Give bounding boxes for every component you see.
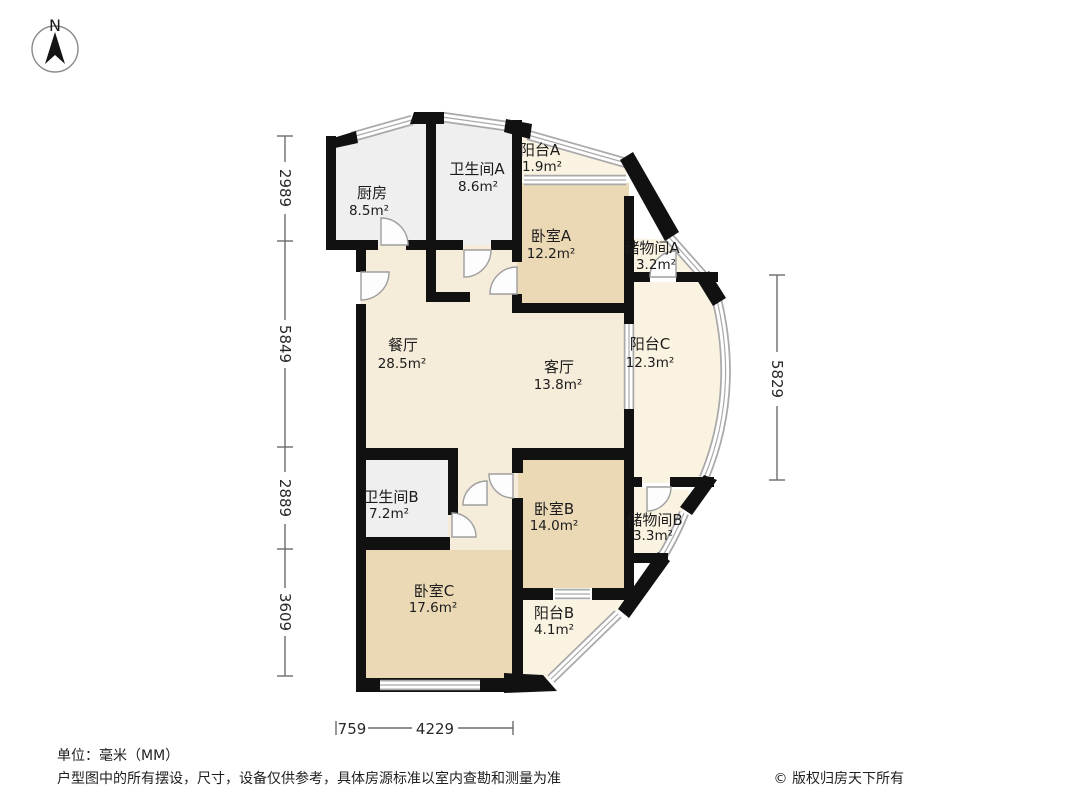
svg-text:14.0m²: 14.0m² bbox=[530, 518, 579, 534]
dim-label-bottom-2: 4229 bbox=[416, 720, 454, 738]
wall-bathroom-b-bottom bbox=[356, 537, 450, 550]
disclaimer-text: 户型图中的所有摆设，尺寸，设备仅供参考，具体房源标准以室内查勘和测量为准 bbox=[57, 768, 561, 788]
wall-balcony-c-left-upper bbox=[624, 272, 634, 324]
dim-label-left-2: 5849 bbox=[276, 325, 294, 363]
svg-text:阳台B: 阳台B bbox=[534, 604, 574, 622]
room-label-bedroom-c: 卧室C 17.6m² bbox=[409, 582, 458, 616]
svg-text:3.3m²: 3.3m² bbox=[633, 528, 673, 544]
svg-text:阳台C: 阳台C bbox=[630, 335, 670, 353]
room-label-balcony-b: 阳台B 4.1m² bbox=[534, 604, 574, 638]
dimension-bottom: 759 4229 bbox=[336, 720, 513, 738]
svg-text:13.8m²: 13.8m² bbox=[534, 377, 583, 393]
dim-label-left-4: 3609 bbox=[276, 593, 294, 631]
wall-storage-a-bottom-2 bbox=[676, 272, 718, 282]
unit-note: 单位：毫米（MM） bbox=[57, 745, 179, 765]
dimension-left: 2989 5849 2889 3609 bbox=[276, 136, 294, 676]
floorplan-svg: 厨房 8.5m² 卫生间A 8.6m² 阳台A 1.9m² 卧室A 12.2m²… bbox=[0, 0, 1066, 800]
wall-storage-b-bottom bbox=[624, 553, 668, 563]
dim-label-left-3: 2889 bbox=[276, 479, 294, 517]
wall-bedroom-b-bottom-2 bbox=[592, 588, 634, 600]
svg-text:1.9m²: 1.9m² bbox=[522, 159, 562, 175]
svg-text:卧室C: 卧室C bbox=[414, 582, 454, 600]
svg-text:卫生间A: 卫生间A bbox=[449, 160, 505, 178]
wall-storage-b-top-2 bbox=[670, 477, 714, 487]
wall-bedroom-b-bottom-1 bbox=[512, 588, 553, 600]
floorplan-page: 厨房 8.5m² 卫生间A 8.6m² 阳台A 1.9m² 卧室A 12.2m²… bbox=[0, 0, 1066, 800]
svg-text:7.2m²: 7.2m² bbox=[369, 506, 409, 522]
wall-dining-stub bbox=[426, 292, 470, 302]
wall-bedroom-b-left-2 bbox=[512, 498, 523, 590]
svg-text:12.3m²: 12.3m² bbox=[626, 355, 675, 371]
svg-text:17.6m²: 17.6m² bbox=[409, 600, 458, 616]
svg-text:储物间A: 储物间A bbox=[624, 239, 680, 257]
svg-text:8.6m²: 8.6m² bbox=[458, 179, 498, 195]
dim-label-right-1: 5829 bbox=[768, 360, 786, 398]
svg-text:卧室B: 卧室B bbox=[534, 500, 574, 518]
copyright-text: © 版权归房天下所有 bbox=[774, 768, 904, 788]
svg-text:厨房: 厨房 bbox=[357, 184, 387, 202]
wall-bathroom-b-top bbox=[356, 448, 458, 460]
svg-text:阳台A: 阳台A bbox=[520, 141, 561, 159]
room-label-bedroom-b: 卧室B 14.0m² bbox=[530, 500, 579, 534]
svg-text:12.2m²: 12.2m² bbox=[527, 246, 576, 262]
room-label-bedroom-a: 卧室A 12.2m² bbox=[527, 227, 576, 262]
dimension-right: 5829 bbox=[768, 275, 786, 480]
svg-text:卫生间B: 卫生间B bbox=[363, 488, 418, 506]
dim-label-bottom-1: 759 bbox=[338, 720, 367, 738]
dim-label-left-1: 2989 bbox=[276, 169, 294, 207]
wall-bathroom-b-right bbox=[448, 448, 458, 515]
svg-text:卧室A: 卧室A bbox=[531, 227, 572, 245]
wall-bedroom-b-top bbox=[512, 448, 634, 460]
wall-bathrooma-bottom-1 bbox=[432, 240, 463, 250]
svg-text:8.5m²: 8.5m² bbox=[349, 203, 389, 219]
svg-text:4.1m²: 4.1m² bbox=[534, 622, 574, 638]
svg-text:3.2m²: 3.2m² bbox=[636, 257, 676, 273]
wall-kitchen-left bbox=[326, 136, 336, 250]
room-label-bathroom-a: 卫生间A 8.6m² bbox=[449, 160, 505, 195]
svg-text:储物间B: 储物间B bbox=[627, 511, 682, 529]
svg-text:28.5m²: 28.5m² bbox=[378, 356, 427, 372]
wall-bedroom-a-bottom bbox=[512, 303, 634, 313]
wall-bedroom-b-left-1 bbox=[512, 460, 523, 473]
svg-text:客厅: 客厅 bbox=[544, 358, 574, 376]
wall-balcony-c-left-lower bbox=[624, 409, 634, 448]
svg-text:餐厅: 餐厅 bbox=[388, 336, 418, 354]
compass: N bbox=[32, 16, 78, 72]
wall-kitchen-bottom-1 bbox=[326, 240, 378, 250]
wall-storage-b-top-1 bbox=[624, 477, 642, 487]
room-label-balcony-a: 阳台A 1.9m² bbox=[520, 141, 562, 175]
wall-kitchen-bathrooma-divider bbox=[426, 122, 436, 302]
